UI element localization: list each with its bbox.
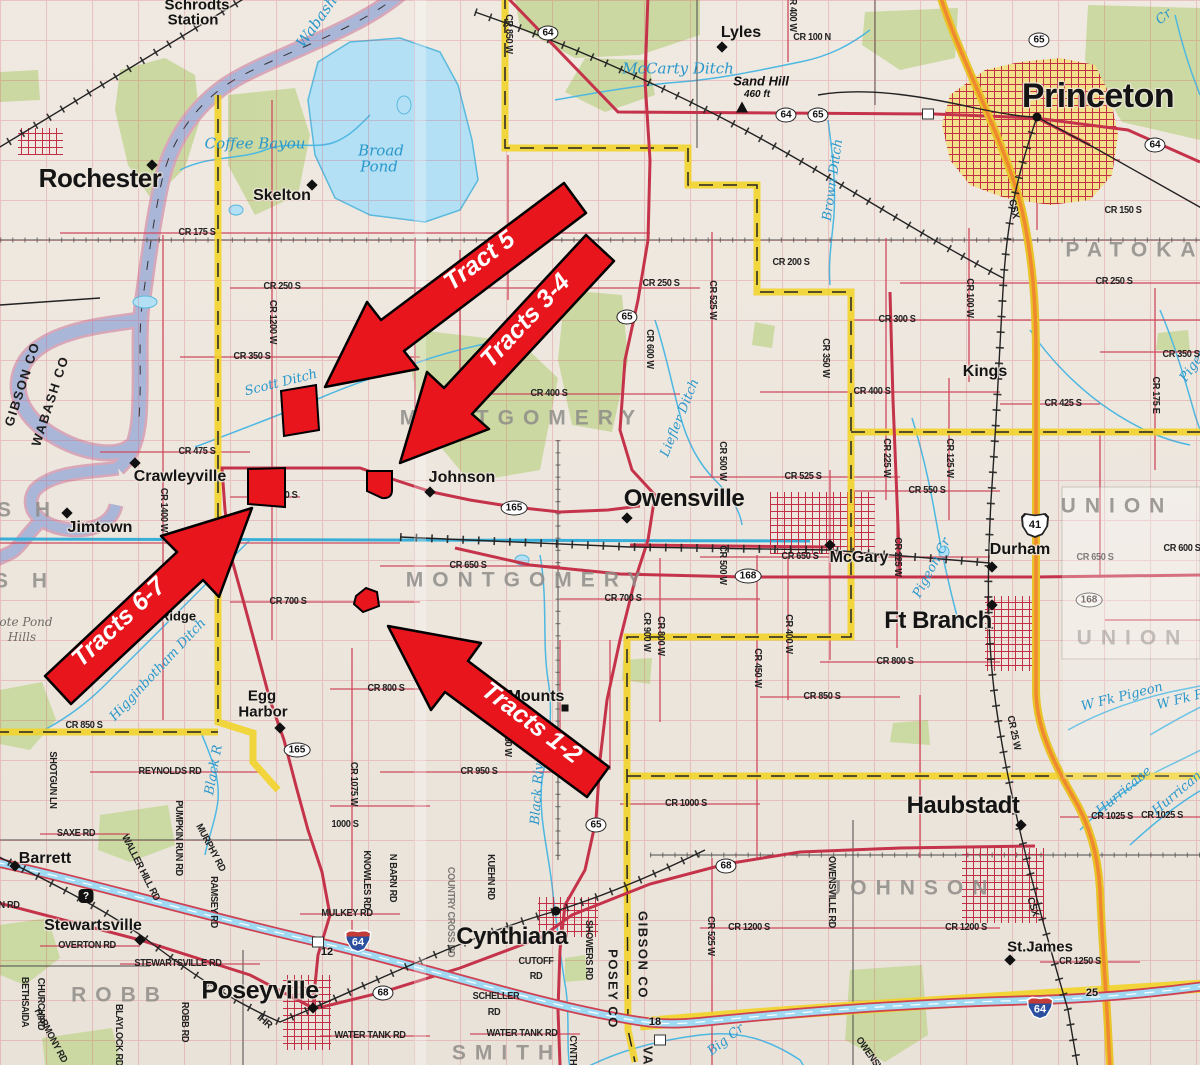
topo-map[interactable]: RochesterPrincetonOwensvillePoseyvilleCy… [0, 0, 1200, 1065]
tracts-6-7-area [248, 468, 285, 507]
tracts-3-4-area [367, 471, 392, 498]
tract-arrows: Tract 5 Tracts 3-4 Tracts 6-7 Tracts 1-2 [45, 183, 614, 797]
arrow-tracts-1-2: Tracts 1-2 [388, 626, 609, 797]
tract-5-area [281, 385, 319, 436]
arrow-tracts-6-7: Tracts 6-7 [45, 508, 252, 704]
tracts-1-2-area [354, 588, 379, 612]
tract-areas [248, 385, 392, 612]
tract-annotations: Tract 5 Tracts 3-4 Tracts 6-7 Tracts 1-2 [0, 0, 1200, 1065]
